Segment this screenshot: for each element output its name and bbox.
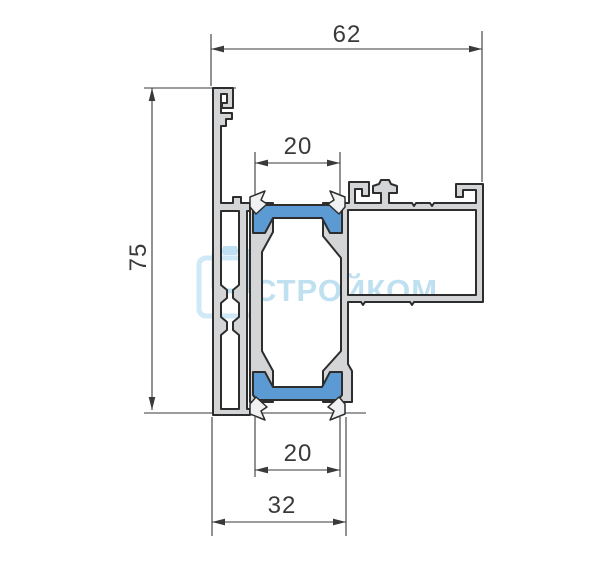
arrowhead-left xyxy=(255,160,268,167)
dim-20-bottom-label: 20 xyxy=(284,440,313,467)
dim-20-top-label: 20 xyxy=(284,133,313,160)
profile-drawing: СТРОЙКОМ 62 75 20 20 xyxy=(0,0,611,578)
arrowhead-right xyxy=(327,160,340,167)
dimension-overall-width: 62 xyxy=(211,21,482,182)
dimension-base-width: 32 xyxy=(212,417,346,536)
arrowhead-left xyxy=(255,467,268,474)
dim-62-label: 62 xyxy=(333,21,362,48)
drawing-canvas: СТРОЙКОМ 62 75 20 20 xyxy=(0,0,611,578)
dimension-groove-bottom: 20 xyxy=(255,417,340,477)
gasket-top xyxy=(253,205,342,233)
arrowhead-right xyxy=(327,467,340,474)
arrowhead-top xyxy=(149,88,156,101)
arrowhead-left xyxy=(212,519,225,526)
dim-32-label: 32 xyxy=(268,492,297,519)
profile-body xyxy=(213,88,483,415)
arrowhead-bottom xyxy=(149,397,156,410)
arrowhead-right xyxy=(469,46,482,53)
dim-75-label: 75 xyxy=(125,243,152,272)
watermark-logo-notch xyxy=(223,246,237,255)
arrowhead-left xyxy=(211,46,224,53)
gasket-bottom xyxy=(253,372,342,400)
watermark: СТРОЙКОМ xyxy=(199,246,438,316)
arrowhead-right xyxy=(333,519,346,526)
